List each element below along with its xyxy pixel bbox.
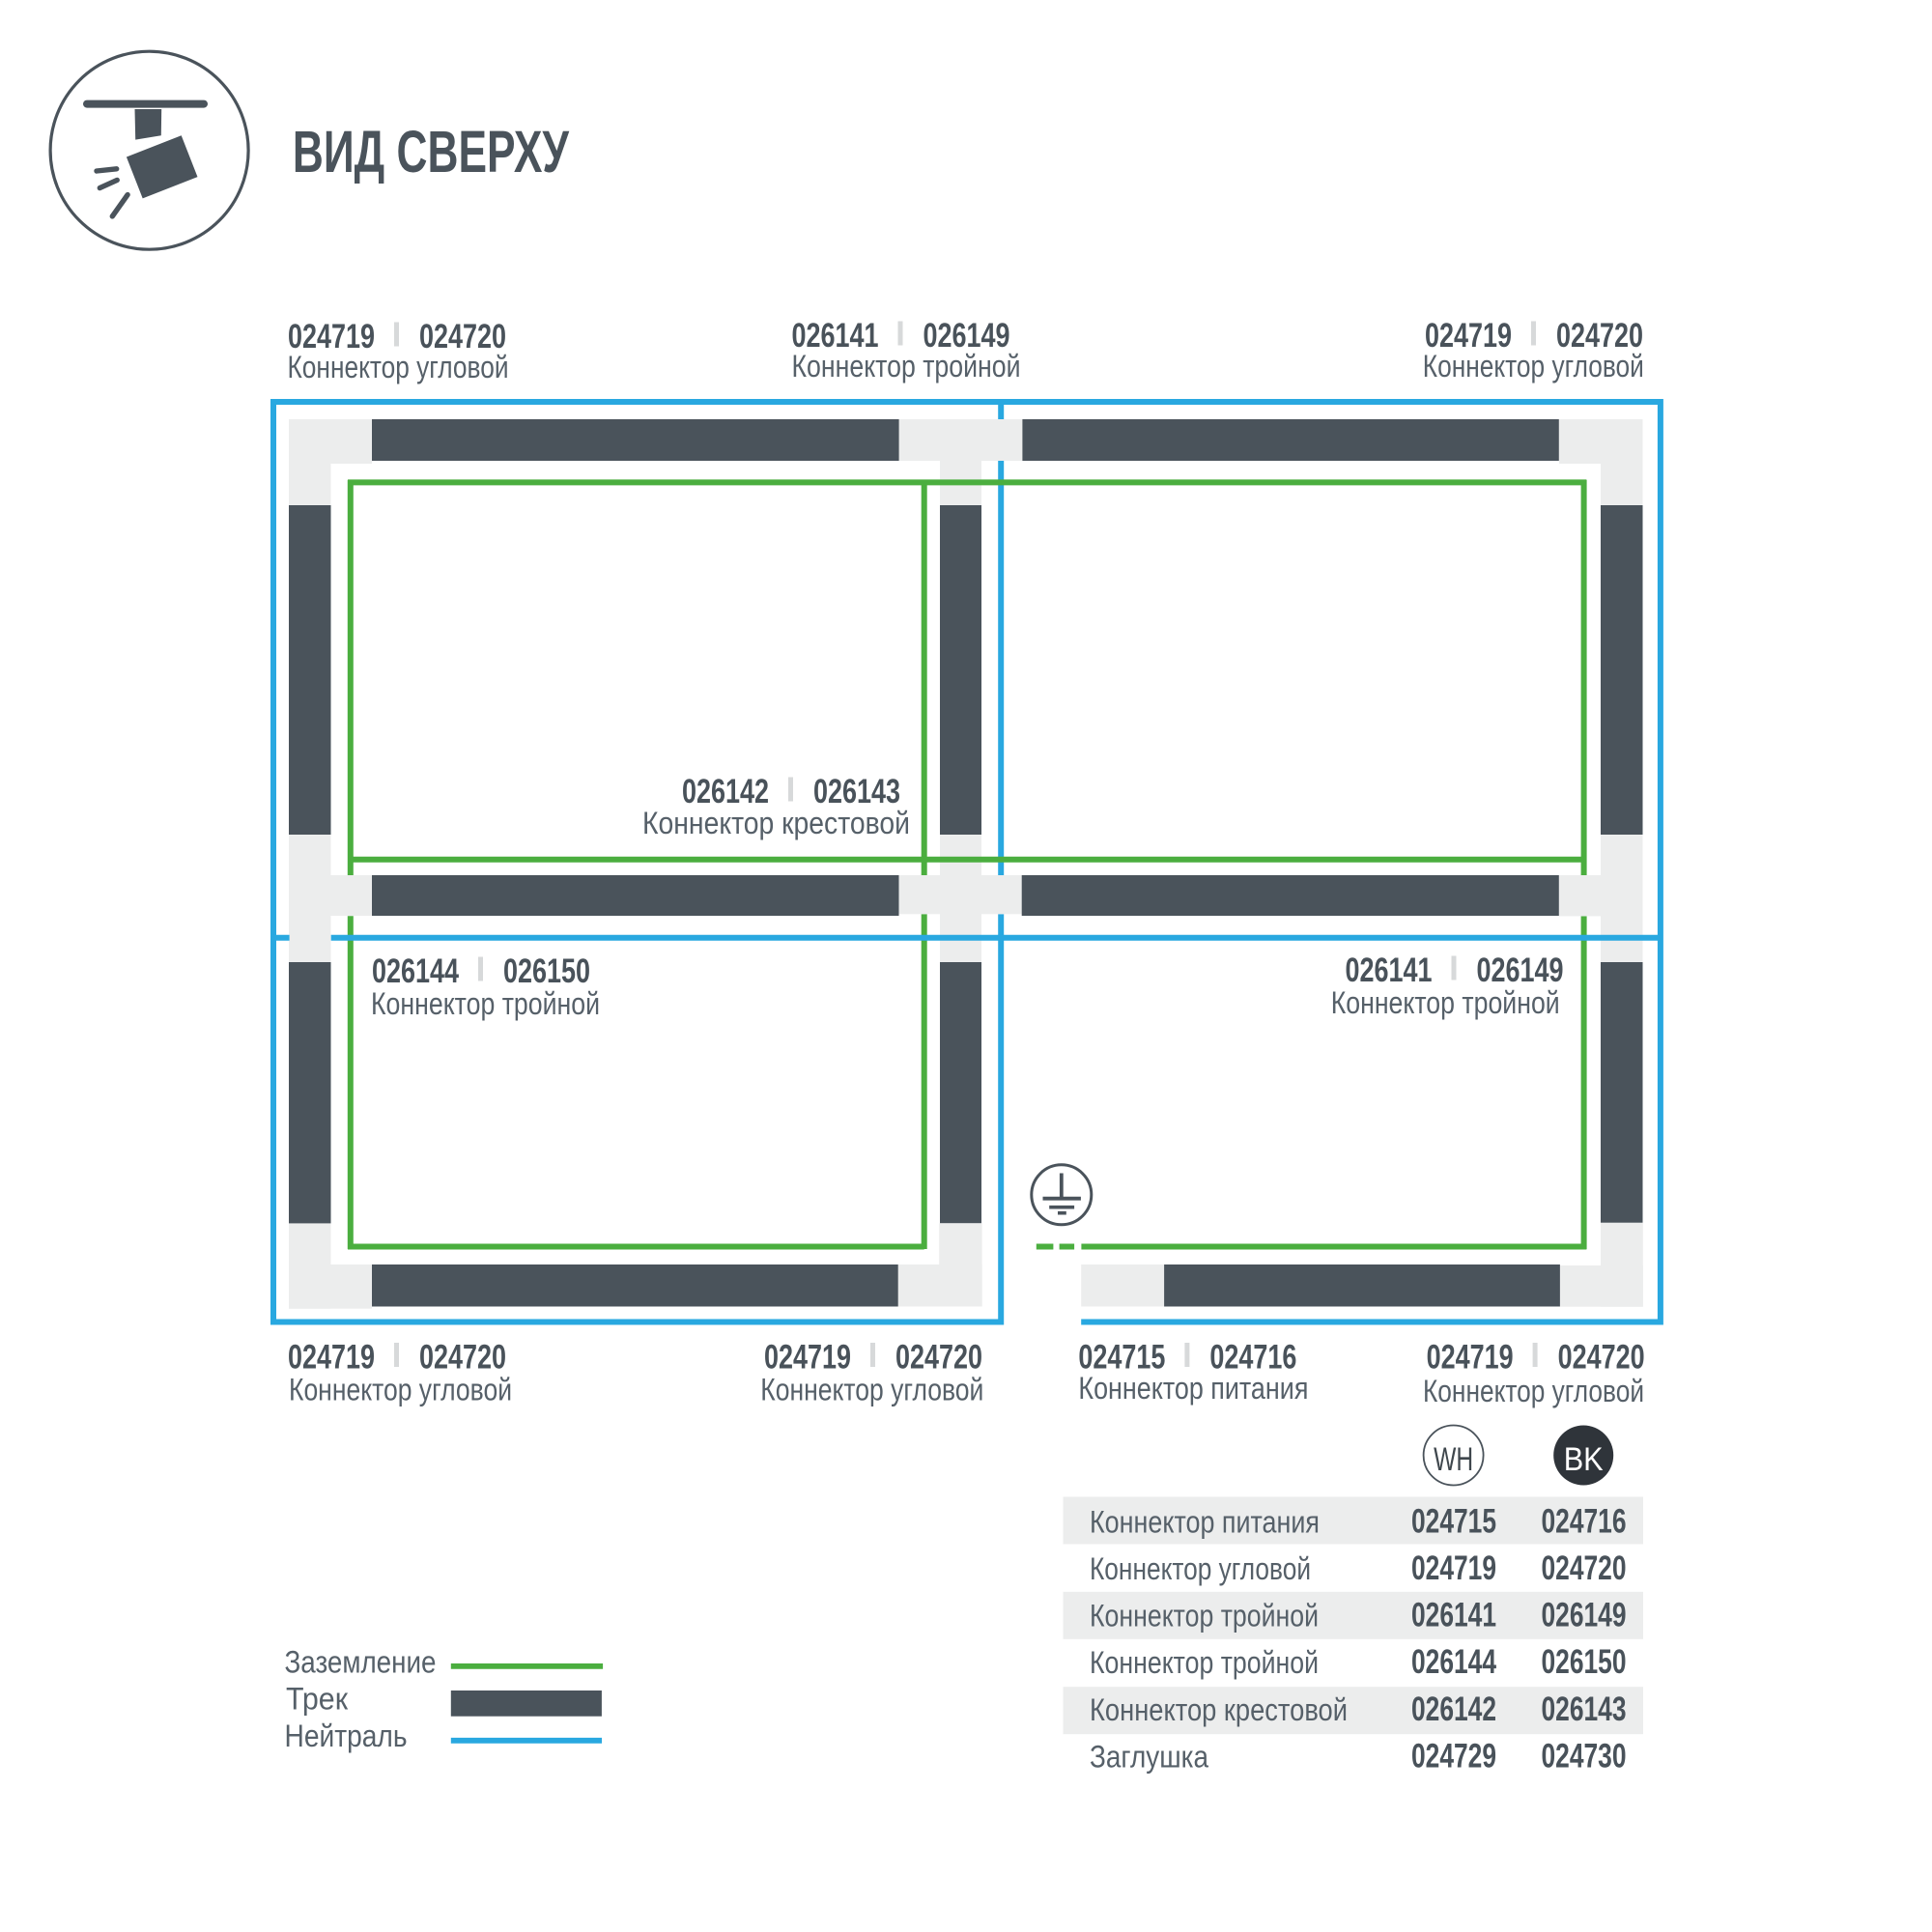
svg-text:Коннектор питания: Коннектор питания xyxy=(1090,1504,1320,1539)
svg-text:Коннектор тройной: Коннектор тройной xyxy=(1331,985,1560,1020)
svg-text:Коннектор угловой: Коннектор угловой xyxy=(760,1373,983,1407)
svg-text:026142: 026142 xyxy=(1411,1690,1496,1728)
svg-text:026141: 026141 xyxy=(1346,952,1433,989)
svg-text:024719: 024719 xyxy=(764,1339,851,1377)
svg-text:Коннектор угловой: Коннектор угловой xyxy=(1423,349,1644,384)
svg-text:026149: 026149 xyxy=(1477,952,1564,989)
svg-text:024719: 024719 xyxy=(1427,1339,1514,1377)
svg-text:024730: 024730 xyxy=(1542,1738,1627,1776)
svg-text:Коннектор угловой: Коннектор угловой xyxy=(1423,1374,1644,1408)
svg-text:Трек: Трек xyxy=(286,1682,349,1717)
svg-text:Заглушка: Заглушка xyxy=(1090,1740,1208,1775)
svg-text:026144: 026144 xyxy=(372,952,459,990)
svg-text:Нейтраль: Нейтраль xyxy=(285,1719,408,1753)
svg-text:024716: 024716 xyxy=(1542,1502,1627,1540)
svg-text:026150: 026150 xyxy=(503,952,590,990)
svg-text:Заземление: Заземление xyxy=(285,1644,437,1679)
svg-text:Коннектор крестовой: Коннектор крестовой xyxy=(1090,1692,1348,1727)
svg-text:024719: 024719 xyxy=(1411,1549,1496,1587)
svg-text:024720: 024720 xyxy=(895,1339,982,1377)
svg-text:Коннектор угловой: Коннектор угловой xyxy=(289,1373,512,1407)
svg-text:026143: 026143 xyxy=(1542,1690,1627,1728)
svg-text:Коннектор угловой: Коннектор угловой xyxy=(288,350,509,384)
svg-text:026141: 026141 xyxy=(1411,1597,1496,1634)
svg-text:WH: WH xyxy=(1434,1441,1473,1478)
svg-text:Коннектор тройной: Коннектор тройной xyxy=(1090,1645,1319,1680)
svg-text:024720: 024720 xyxy=(1542,1549,1627,1587)
svg-text:Коннектор тройной: Коннектор тройной xyxy=(371,986,600,1021)
svg-text:Коннектор крестовой: Коннектор крестовой xyxy=(642,806,910,840)
svg-text:024729: 024729 xyxy=(1411,1738,1496,1776)
svg-text:024719: 024719 xyxy=(288,1339,375,1377)
svg-text:026144: 026144 xyxy=(1411,1643,1496,1681)
svg-text:ВИД СВЕРХУ: ВИД СВЕРХУ xyxy=(293,119,570,185)
svg-text:024715: 024715 xyxy=(1411,1502,1496,1540)
svg-text:Коннектор тройной: Коннектор тройной xyxy=(1090,1599,1319,1634)
svg-text:BK: BK xyxy=(1564,1441,1604,1478)
svg-text:Коннектор питания: Коннектор питания xyxy=(1078,1371,1308,1406)
svg-text:Коннектор угловой: Коннектор угловой xyxy=(1090,1551,1311,1586)
svg-text:024720: 024720 xyxy=(1558,1339,1645,1377)
svg-text:024720: 024720 xyxy=(419,1339,506,1377)
svg-text:Коннектор тройной: Коннектор тройной xyxy=(792,349,1021,384)
svg-text:026150: 026150 xyxy=(1542,1643,1627,1681)
svg-text:026149: 026149 xyxy=(1542,1597,1627,1634)
